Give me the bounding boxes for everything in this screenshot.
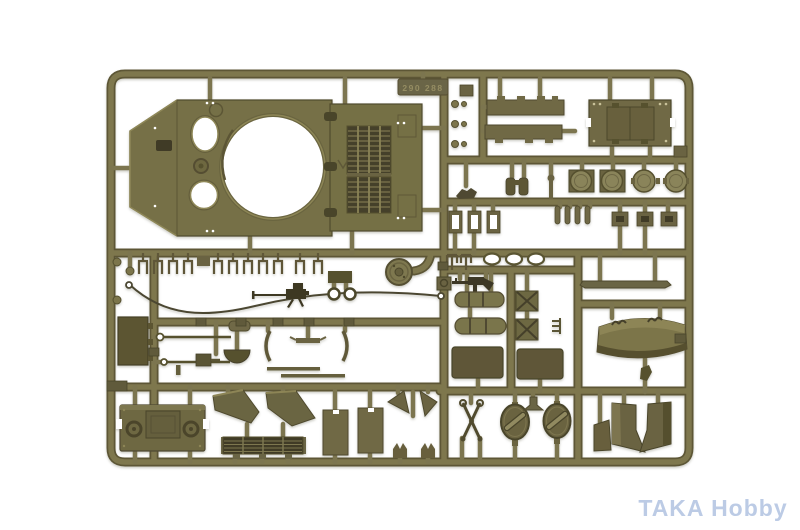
thin-bar-2 xyxy=(281,374,345,378)
sprue-frame-group: 290 288 xyxy=(107,74,689,462)
upper-hull-part xyxy=(130,100,422,236)
gun-cradle-part xyxy=(328,271,352,283)
claw-parts xyxy=(393,443,435,458)
cable-clamp-scissor xyxy=(460,400,483,442)
stepped-block-part xyxy=(594,420,611,451)
tool-box-part xyxy=(118,317,153,365)
ring-plate-part xyxy=(437,277,451,290)
round-hatch-covers xyxy=(569,170,689,192)
pedestal-part xyxy=(524,397,543,410)
hook-row-block xyxy=(197,256,210,266)
small-box-parts xyxy=(612,212,677,226)
engine-grille-lower xyxy=(347,177,391,213)
sponson-strip-1 xyxy=(487,96,564,115)
comb-part xyxy=(552,318,560,334)
oval-ring-parts xyxy=(484,254,544,265)
sprue-number-tag: 290 288 xyxy=(398,79,448,95)
final-drive-wedges xyxy=(612,402,671,452)
watermark-text: TAKA Hobby xyxy=(638,495,787,521)
louvered-grille-part xyxy=(221,437,306,459)
tow-cable-wire xyxy=(130,285,441,313)
bracket-parts xyxy=(449,211,500,233)
sponson-strip-2 xyxy=(485,125,562,143)
corner-block-part xyxy=(674,146,687,157)
barrel-rod-parts xyxy=(157,334,232,376)
sprue-drawing: 290 288 xyxy=(0,0,800,530)
small-fitting-part xyxy=(456,188,477,199)
post-part xyxy=(548,175,555,200)
thin-bar-1 xyxy=(267,367,320,371)
glacis-slot xyxy=(156,140,172,151)
sprue-tag-text: 290 288 xyxy=(402,83,443,93)
engine-grille-upper xyxy=(347,126,391,174)
flat-bar-part xyxy=(580,281,671,288)
idler-wheel-part xyxy=(386,259,412,285)
turret-ring-opening xyxy=(219,113,327,221)
hook-part xyxy=(640,365,652,381)
peg-parts xyxy=(555,206,590,224)
curved-deck-cover xyxy=(597,318,687,358)
mudguard-parts xyxy=(213,390,315,426)
vent-circle xyxy=(210,104,223,117)
cable-eye-left xyxy=(126,282,132,288)
riveted-hatch-plate xyxy=(586,100,675,146)
rear-hull-plate xyxy=(116,405,209,451)
bed-roll-parts xyxy=(455,292,506,334)
binoculars-part xyxy=(506,178,528,195)
sprue-photo: 290 288 xyxy=(0,0,800,530)
cable-eye-right xyxy=(438,293,444,299)
fuel-tank-panels xyxy=(323,408,383,455)
pin-parts xyxy=(452,85,474,148)
